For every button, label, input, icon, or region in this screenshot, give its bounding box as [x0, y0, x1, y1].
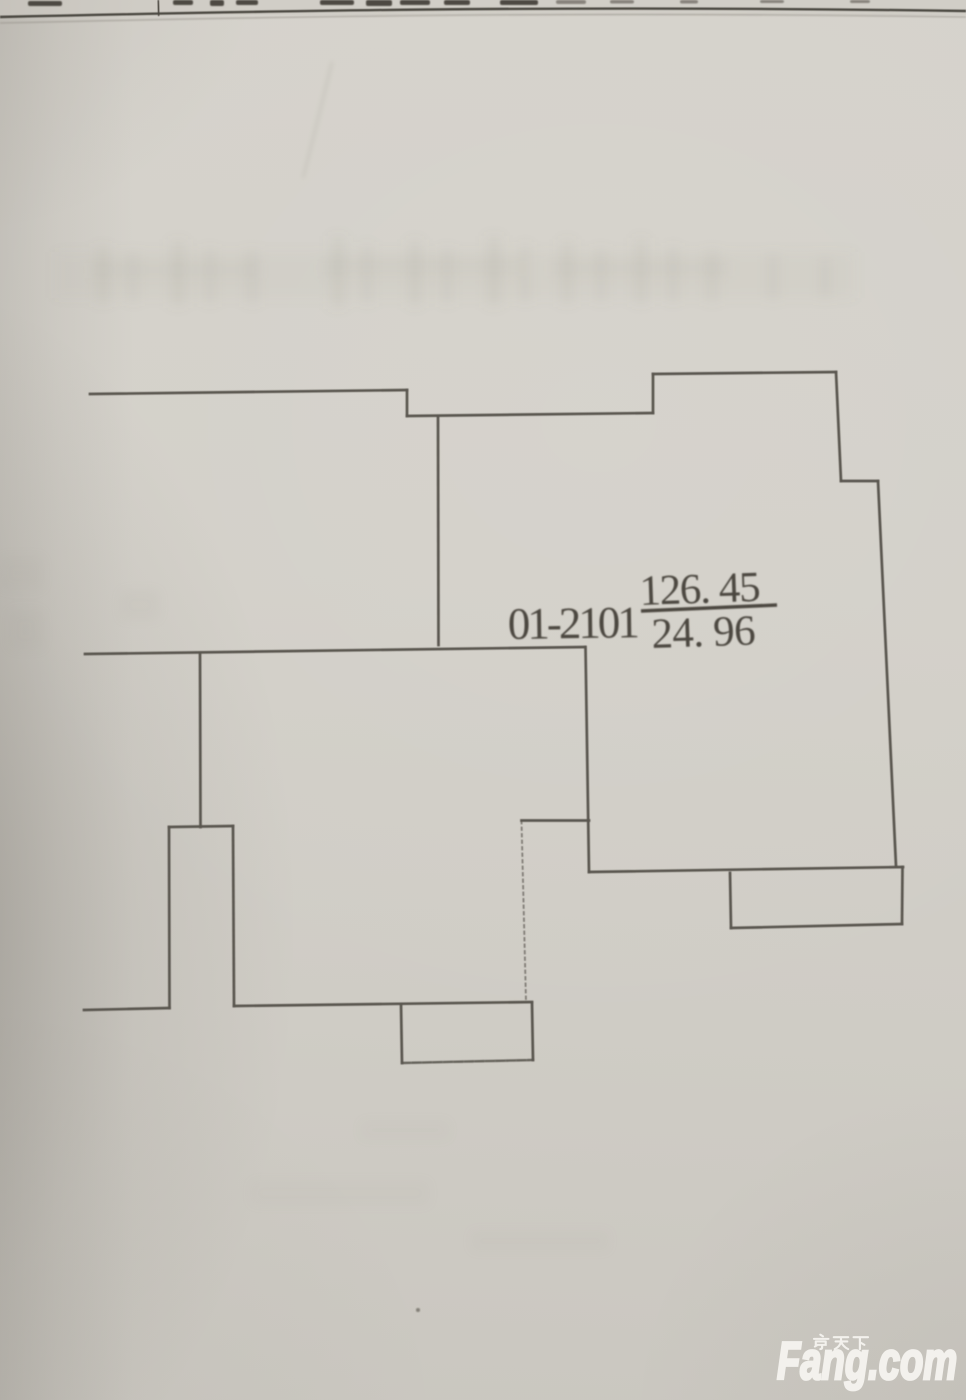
svg-text:24. 96: 24. 96 [651, 607, 757, 658]
svg-text:Fang.com: Fang.com [777, 1331, 957, 1391]
svg-text:01-2101: 01-2101 [507, 597, 640, 649]
